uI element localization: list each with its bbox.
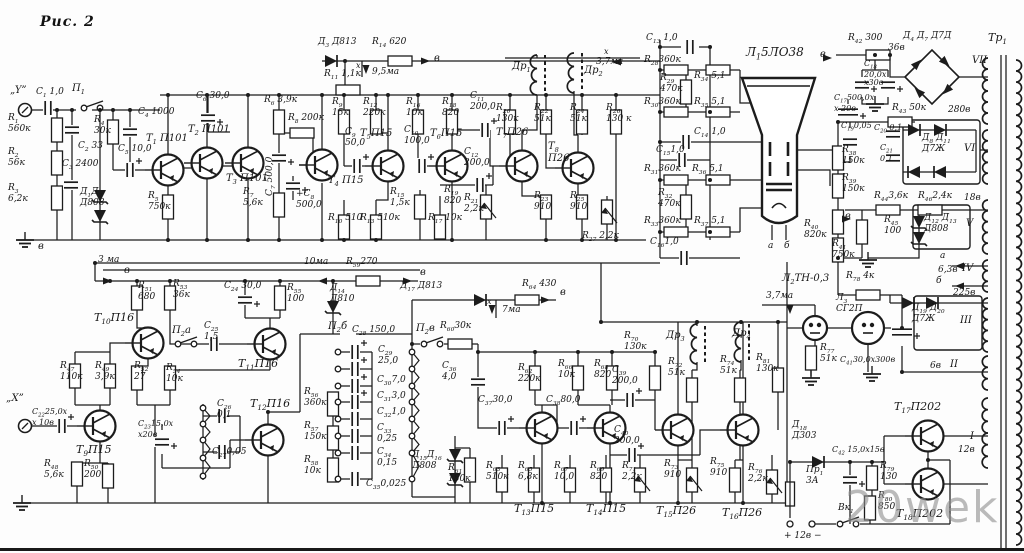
schematic-label: R42 300 — [848, 34, 882, 45]
schematic-label: VI — [964, 144, 975, 154]
schematic-label: в — [38, 242, 44, 252]
wind-symbol — [983, 58, 989, 124]
schematic-label: R78 4к — [846, 272, 874, 283]
rv-symbol — [601, 200, 617, 224]
arr-symbol — [363, 65, 370, 74]
schematic-label: R430к — [94, 116, 111, 136]
schematic-label: С330,25 — [377, 424, 397, 444]
schematic-label: С39200,0 — [612, 366, 638, 386]
tr-symbol — [429, 151, 468, 182]
schematic-label: Л3СГ2П — [836, 294, 862, 314]
schematic-label: R2451к — [570, 104, 587, 124]
schematic-label: R30360к — [644, 98, 681, 109]
tr-symbol — [77, 411, 116, 442]
dot-symbol — [776, 320, 780, 324]
tr-symbol — [245, 425, 284, 456]
schematic-label: С12200,0 — [464, 148, 490, 168]
schematic-label: Д12 Д13Д808 — [924, 214, 957, 234]
schematic-label: С190,05 — [841, 122, 872, 133]
schematic-label: R6030к — [440, 322, 471, 333]
rh-symbol — [388, 56, 412, 66]
dot-symbol — [93, 261, 97, 265]
schematic-label: R1610к — [406, 98, 423, 118]
schematic-label: III — [960, 316, 972, 326]
schematic-label: Т17П202 — [894, 401, 941, 415]
schematic-label: R6 3,9к — [264, 96, 297, 107]
schematic-label: R7751к — [820, 344, 837, 364]
schematic-label: Т12П16 — [250, 398, 290, 412]
schematic-label: Т4 П15 — [328, 176, 364, 188]
schematic-label: в — [124, 266, 130, 276]
ch-symbol — [350, 411, 360, 427]
schematic-label: Т16П26 — [722, 507, 762, 521]
schematic-label: R57150к — [304, 422, 327, 442]
rv-symbol — [650, 366, 661, 390]
schematic-label: 36в — [888, 44, 905, 53]
dot-symbol — [450, 238, 454, 242]
rh-symbol — [448, 339, 472, 349]
schematic-label: С3 2400 — [62, 160, 98, 171]
z-symbol — [447, 449, 463, 463]
schematic-label: Д19 Д20Д7Ж — [912, 304, 945, 324]
ch-symbol — [685, 39, 695, 55]
schematic-label: R17 10к — [428, 214, 462, 225]
wind-symbol — [983, 200, 988, 254]
dot-symbol — [658, 140, 662, 144]
ch-symbol — [125, 162, 135, 178]
rv-symbol — [275, 286, 286, 310]
rv-symbol — [686, 468, 702, 492]
schematic-label: R29470к — [660, 74, 683, 94]
tr-symbol — [125, 328, 164, 359]
dot-symbol — [658, 230, 662, 234]
schematic-label: +С8500,0 — [296, 190, 322, 210]
schematic-label: 7ма — [502, 306, 521, 315]
schematic-label: Д1Д2Д808 — [80, 188, 105, 208]
wind-symbol — [983, 260, 988, 292]
schematic-label: П1 — [72, 84, 85, 96]
dot-symbol — [416, 93, 420, 97]
schematic-label: в — [420, 268, 426, 278]
schematic-label: R25910 — [570, 192, 587, 212]
dot-symbol — [900, 370, 904, 374]
dot-symbol — [450, 93, 454, 97]
schematic-label: 6,3в — [938, 266, 958, 275]
dot-symbol — [926, 458, 930, 462]
dot-symbol — [343, 59, 347, 63]
schematic-label: Т3 П101 — [226, 174, 268, 186]
schematic-label: С10100,0 — [404, 126, 430, 146]
schematic-label: в — [560, 288, 566, 298]
schematic-label: П2б — [328, 322, 347, 334]
wind-symbol — [983, 298, 988, 352]
dot-symbol — [739, 320, 743, 324]
d-symbol — [325, 55, 337, 67]
rh-symbol — [515, 295, 539, 305]
dot-symbol — [580, 93, 584, 97]
dot-symbol — [386, 93, 390, 97]
schematic-label: R27 2,2к — [582, 232, 619, 243]
schematic-label: IV — [962, 264, 973, 274]
schematic-label: R26130 к — [606, 104, 631, 124]
schematic-label: б — [784, 242, 790, 251]
dot-symbol — [544, 238, 548, 242]
schematic-label: С307,0 — [377, 376, 406, 387]
schematic-label: Д18Д303 — [792, 421, 817, 441]
gnd-symbol — [802, 370, 820, 385]
schematic-label: 3,7ма — [766, 292, 793, 301]
schematic-label: R59270 — [346, 258, 378, 269]
bottom-border — [0, 548, 1024, 551]
schematic-label: С2225,0хх 10в — [32, 408, 67, 427]
schematic-label: С251,5 — [204, 322, 218, 342]
schematic-label: а — [940, 252, 945, 261]
schematic-label: R70130к — [624, 332, 647, 352]
schematic-label: R7251к — [668, 358, 685, 378]
schematic-label: С210,1 — [880, 144, 893, 163]
t2-symbol — [809, 521, 815, 527]
dot-symbol — [708, 45, 712, 49]
tr-symbol — [655, 415, 694, 446]
schematic-label: С1820,0хх30в — [864, 60, 886, 88]
ch-symbol — [497, 420, 507, 436]
dot-symbol — [128, 108, 132, 112]
schematic-label: С151,0 — [656, 146, 685, 157]
watermark: 20wek — [845, 482, 1000, 533]
schematic-label: в — [845, 212, 851, 222]
schematic-label: + 12в − — [784, 532, 822, 541]
schematic-label: R61150к — [448, 464, 471, 484]
ch-symbol — [625, 392, 635, 408]
schematic-label: С20 0,1 — [874, 124, 902, 135]
dot-symbol — [653, 350, 657, 354]
rv-symbol — [857, 220, 868, 244]
schematic-label: х — [356, 62, 361, 70]
dot-symbol — [708, 230, 712, 234]
schematic-label: R10 510 — [328, 214, 362, 225]
dot-symbol — [342, 238, 346, 242]
schematic-label: б — [936, 277, 942, 286]
br-symbol — [905, 50, 959, 104]
dot-symbol — [708, 110, 712, 114]
arr-symbol — [421, 58, 430, 65]
schematic-label: Д4 Д7 Д7Д — [903, 32, 951, 43]
cv-symbol — [63, 180, 79, 190]
schematic-label: R68820 — [594, 360, 611, 380]
schematic-label: С28 150,0 — [352, 326, 395, 337]
rh-symbol — [290, 128, 314, 138]
schematic-label: R45100 — [884, 216, 901, 236]
schematic-label: R36 5,1 — [692, 165, 724, 176]
coil-symbol — [690, 324, 697, 364]
schematic-label: С13 1,0 — [646, 34, 678, 45]
schematic-label: Т9П15 — [76, 444, 112, 458]
rv-symbol — [681, 195, 692, 219]
schematic-label: R43 50к — [892, 104, 926, 115]
dot-symbol — [55, 108, 59, 112]
rv-symbol — [415, 195, 426, 219]
schematic-label: Л2ТН-0,3 — [782, 274, 829, 286]
dot-symbol — [870, 460, 874, 464]
rv-symbol — [52, 118, 63, 142]
d-symbol — [908, 124, 920, 136]
schematic-label: R151,5к — [390, 188, 410, 208]
schematic-label: R39150к — [842, 174, 865, 194]
schematic-label: R50200 — [84, 460, 101, 480]
dot-symbol — [658, 178, 662, 182]
schematic-label: С42 15,0х15в — [832, 446, 885, 457]
schematic-label: R656,8к — [518, 462, 538, 482]
dot-symbol — [658, 68, 662, 72]
schematic-label: R443,6к — [874, 192, 908, 203]
wind-symbol — [983, 130, 988, 184]
schematic-label: С4 1000 — [138, 108, 174, 119]
schematic-label: а — [768, 242, 773, 251]
dot-symbol — [374, 238, 378, 242]
schematic-label: Т10П16 — [94, 312, 134, 326]
rh-symbol — [356, 276, 380, 286]
schematic-label: R2251к — [534, 104, 551, 124]
schematic-label: Л15ЛО38 — [746, 46, 804, 62]
cv-symbol — [200, 113, 216, 123]
schematic-label: С321,0 — [377, 408, 406, 419]
schematic-label: 3,7ма — [596, 58, 623, 67]
ch-symbol — [350, 445, 360, 461]
schematic-label: С6 30,0 — [196, 92, 230, 103]
schematic-label: С40200,0 — [614, 426, 640, 446]
dot-symbol — [410, 342, 414, 346]
cv-symbol — [470, 377, 486, 387]
t2-symbol — [787, 521, 793, 527]
gnd-symbol — [863, 366, 881, 381]
lamp-symbol — [852, 312, 884, 344]
schematic-label: Т14П15 — [586, 503, 626, 517]
ch-symbol — [350, 378, 360, 394]
schematic-label: х — [487, 298, 492, 306]
schematic-label: R6610к — [558, 360, 575, 380]
schematic-page: Рис. 2 „Y”С1 1,0П1R1560кR256кR36,2кС2 33… — [0, 0, 1024, 553]
dot-symbol — [888, 53, 892, 57]
schematic-label: R33360к — [644, 217, 681, 228]
ch-symbol — [679, 250, 689, 266]
tr-symbol — [184, 148, 223, 179]
tr-symbol — [499, 151, 538, 182]
ch-symbol — [569, 420, 579, 436]
rh-symbol — [876, 205, 900, 215]
schematic-label: R75,6к — [243, 188, 263, 208]
schematic-label: R73910 — [664, 460, 681, 480]
ch-symbol — [350, 361, 360, 377]
tr-symbol — [519, 413, 558, 444]
rh-symbol — [336, 85, 360, 95]
fu-symbol — [786, 482, 795, 506]
schematic-label: R5810к — [304, 456, 321, 476]
schematic-label: R35 5,1 — [694, 98, 726, 109]
schematic-label: R41750к — [832, 240, 855, 260]
schematic-label: С3880,0 — [546, 396, 581, 407]
schematic-label: Д15Д16Д808 — [412, 451, 442, 471]
schematic-label: R51680 — [138, 282, 155, 302]
schematic-label: Тр1 — [988, 32, 1007, 46]
dot-symbol — [695, 320, 699, 324]
schematic-label: „X” — [6, 394, 24, 404]
schematic-label: С24 30,0 — [224, 282, 261, 293]
rh-symbol — [664, 175, 688, 185]
d-symbol — [908, 166, 920, 178]
dot-symbol — [658, 45, 662, 49]
dot-symbol — [873, 53, 877, 57]
schematic-label: R36,2к — [8, 184, 28, 204]
schematic-label: Т13П15 — [514, 503, 554, 517]
schematic-label: R32470к — [658, 189, 681, 209]
schematic-label: Т1 П101 — [146, 134, 188, 146]
schematic-label: R6710,0 — [554, 462, 574, 482]
schematic-label: Т7П26 — [496, 128, 528, 140]
schematic-label: С313,0 — [377, 392, 406, 403]
dot-symbol — [108, 279, 112, 283]
schematic-label: R462,4к — [918, 192, 952, 203]
schematic-label: Пр13А — [806, 466, 823, 486]
dot-symbol — [508, 93, 512, 97]
d-symbol — [474, 294, 486, 306]
schematic-label: R69820 — [590, 462, 607, 482]
term-symbol — [19, 420, 32, 433]
dot-symbol — [98, 108, 102, 112]
schematic-label: х — [604, 48, 609, 56]
rv-symbol — [72, 462, 83, 486]
schematic-label: R23910 — [534, 192, 551, 212]
ch-symbol — [350, 428, 360, 444]
coil-symbol — [567, 53, 574, 93]
schematic-label: С161,0 — [650, 238, 679, 249]
schematic-label: С350,025 — [366, 480, 406, 491]
schematic-label: 280в — [948, 106, 970, 115]
ch-symbol — [480, 122, 490, 138]
dot-symbol — [166, 238, 170, 242]
dot-symbol — [246, 93, 250, 97]
schematic-label: С2 33 — [78, 142, 103, 153]
schematic-label: 9,5ма — [372, 68, 399, 77]
schematic-label: R762,2к — [748, 464, 768, 484]
rv-symbol — [274, 110, 285, 134]
schematic-label: П2в — [416, 324, 435, 336]
tr-symbol — [905, 421, 944, 452]
schematic-label: R47110к — [60, 362, 83, 382]
schematic-label: Т2 П101 — [188, 125, 230, 137]
dot-symbol — [544, 93, 548, 97]
dot-symbol — [788, 460, 792, 464]
dot-symbol — [658, 110, 662, 114]
schematic-label: С270,05 — [212, 448, 247, 459]
dot-symbol — [374, 93, 378, 97]
schematic-label: Д14Д810 — [330, 284, 355, 304]
dot-symbol — [111, 108, 115, 112]
tr-symbol — [247, 329, 286, 360]
schematic-label: Т15П26 — [656, 505, 696, 519]
cv-symbol — [64, 125, 80, 135]
dot-symbol — [70, 108, 74, 112]
d-symbol — [934, 166, 946, 178]
schematic-label: в — [820, 50, 826, 60]
wind-symbol — [1016, 60, 1022, 545]
dot-symbol — [320, 238, 324, 242]
arr-symbol — [541, 297, 550, 304]
schematic-label: R256к — [8, 148, 25, 168]
dot-symbol — [277, 238, 281, 242]
arr-symbol — [489, 305, 496, 314]
dot-symbol — [476, 350, 480, 354]
rv-symbol — [766, 470, 782, 494]
ch-symbol — [350, 394, 360, 410]
schematic-label: С3730,0 — [478, 396, 513, 407]
rv-symbol — [103, 464, 114, 488]
schematic-label: I — [970, 432, 974, 442]
schematic-label: Др1 — [512, 62, 531, 74]
schematic-label: С4130,0х300в — [840, 356, 895, 367]
tr-symbol — [720, 415, 759, 446]
schematic-label: R5750к — [148, 192, 171, 212]
schematic-label: С11200,0 — [470, 92, 496, 112]
schematic-label: R915к — [332, 98, 349, 118]
schematic-label: 6в — [930, 362, 941, 371]
schematic-label: Др2 — [584, 66, 603, 78]
schematic-label: С7 500,0 — [266, 157, 277, 196]
ch-symbol — [350, 471, 360, 487]
schematic-label: R212,2к — [464, 194, 484, 214]
tr-symbol — [365, 151, 404, 182]
schematic-label: С5 10,0 — [118, 145, 152, 156]
schematic-label: R1560к — [8, 114, 31, 134]
schematic-label: R7451к — [720, 356, 737, 376]
cv-symbol — [237, 295, 253, 305]
schematic-label: 3 ма — [98, 256, 119, 265]
schematic-label: 18в — [964, 194, 981, 203]
wind-symbol — [982, 398, 988, 468]
ch-symbol — [417, 158, 427, 174]
arr-symbol — [318, 278, 327, 285]
schematic-label: С2925,0 — [378, 346, 398, 366]
schematic-label: R14 620 — [372, 38, 406, 49]
schematic-label: Т11П16 — [238, 358, 278, 372]
schematic-label: С17500,0хх 20в — [834, 94, 874, 113]
dot-symbol — [278, 279, 282, 283]
schematic-label: С1 1,0 — [36, 88, 64, 99]
schematic-label: R485,6к — [44, 460, 64, 480]
ch-symbol — [43, 100, 53, 116]
dot-symbol — [205, 238, 209, 242]
ch-symbol — [475, 177, 485, 193]
schematic-label: II — [950, 360, 958, 370]
z-symbol — [92, 210, 108, 224]
schematic-label: R493,9к — [95, 362, 115, 382]
gnd-symbol — [16, 232, 34, 247]
rv-symbol — [730, 468, 741, 492]
schematic-label: Т5П15 — [360, 129, 392, 141]
dot-symbol — [614, 93, 618, 97]
schematic-label: V — [966, 219, 973, 229]
dot-symbol — [342, 93, 346, 97]
rv-symbol — [806, 346, 817, 370]
dot-symbol — [741, 501, 745, 505]
schematic-label: 225в — [953, 289, 975, 298]
schematic-label: R38150к — [842, 146, 865, 166]
schematic-label: R81130к — [756, 354, 779, 374]
schematic-label: в — [434, 54, 440, 64]
schematic-label: С2315,0хх20в — [138, 420, 173, 439]
rv-symbol — [52, 151, 63, 175]
schematic-label: 10ма — [304, 258, 328, 267]
schematic-label: Т6П15 — [430, 129, 462, 141]
